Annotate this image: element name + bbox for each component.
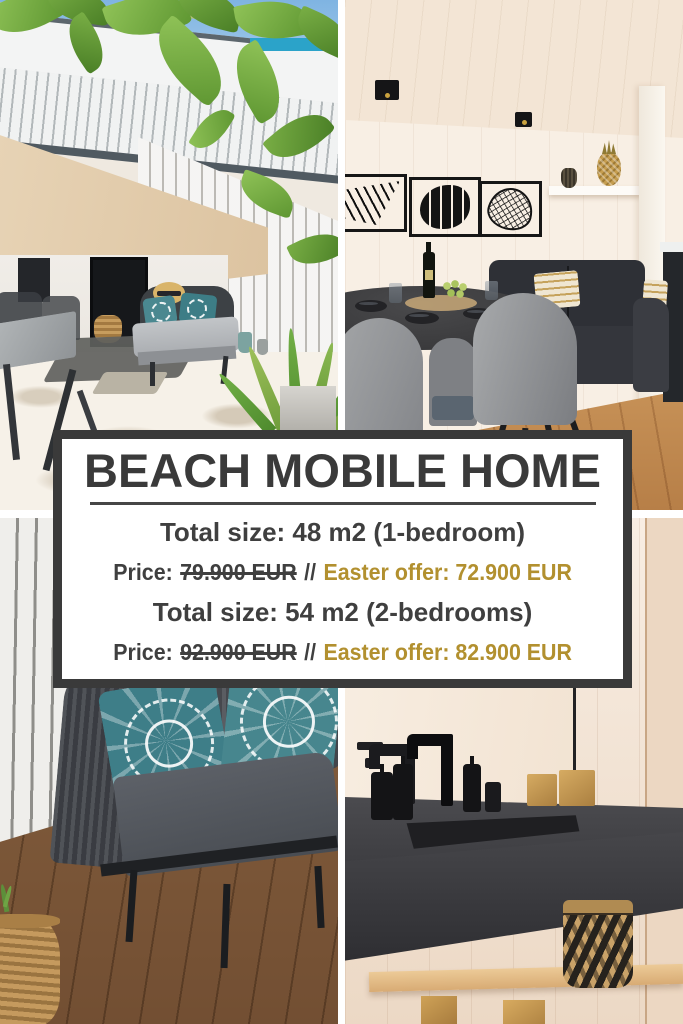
wooden-cube [559, 770, 595, 806]
drinking-glass [485, 281, 498, 300]
wooden-box [421, 996, 457, 1024]
old-price: 79.900 EUR [180, 559, 297, 586]
rattan-basket [0, 914, 60, 1024]
pineapple-ornament [597, 152, 621, 186]
soap-dispenser [393, 764, 413, 820]
price-separator: // [304, 559, 316, 586]
soap-dispenser [371, 772, 393, 820]
daybed-leg [150, 362, 155, 386]
price-line-1-content: Price: 79.900 EUR // Easter offer: 72.90… [113, 559, 572, 586]
poster-title: BEACH MOBILE HOME [62, 445, 623, 497]
price-line-2: Price: 92.900 EUR // Easter offer: 82.90… [62, 632, 623, 672]
door-mat [92, 372, 169, 394]
black-faucet [441, 734, 453, 806]
wall-shelf [549, 186, 641, 195]
woven-basket [563, 900, 633, 988]
wooden-cube [527, 774, 557, 806]
concrete-planter [280, 386, 336, 430]
price-label: Price: [113, 559, 172, 586]
drinking-glass [389, 283, 402, 303]
small-vase [561, 168, 577, 188]
price-line-2-content: Price: 92.900 EUR // Easter offer: 82.90… [113, 639, 572, 666]
wall-column [645, 518, 683, 1024]
price-separator: // [304, 639, 316, 666]
palm-art-frame [345, 174, 407, 232]
soap-dispenser [463, 764, 481, 812]
wooden-box [503, 1000, 545, 1024]
grey-chair [473, 293, 577, 425]
sofa-armrest [633, 298, 669, 392]
old-price: 92.900 EUR [180, 639, 297, 666]
ceiling-spotlight [515, 112, 532, 127]
black-bowl [355, 300, 387, 312]
leaf-art-frame [479, 181, 542, 237]
black-cup [485, 782, 501, 812]
title-divider [90, 502, 596, 505]
grapes [441, 280, 471, 300]
size-line-1: Total size: 48 m2 (1-bedroom) [62, 512, 623, 552]
grey-chair [345, 318, 423, 446]
size-line-2: Total size: 54 m2 (2-bedrooms) [62, 592, 623, 632]
monstera-art-frame [409, 177, 481, 237]
offer-banner: BEACH MOBILE HOME Total size: 48 m2 (1-b… [53, 430, 632, 688]
grey-chair [429, 338, 477, 426]
price-label: Price: [113, 639, 172, 666]
price-line-1: Price: 79.900 EUR // Easter offer: 72.90… [62, 552, 623, 592]
black-bowl [405, 312, 439, 324]
easter-offer-price: Easter offer: 72.900 EUR [323, 559, 571, 586]
wine-bottle [423, 252, 435, 298]
easter-offer-price: Easter offer: 82.900 EUR [323, 639, 571, 666]
ceiling-spotlight [375, 80, 399, 100]
teal-accent-stripe [250, 38, 328, 51]
